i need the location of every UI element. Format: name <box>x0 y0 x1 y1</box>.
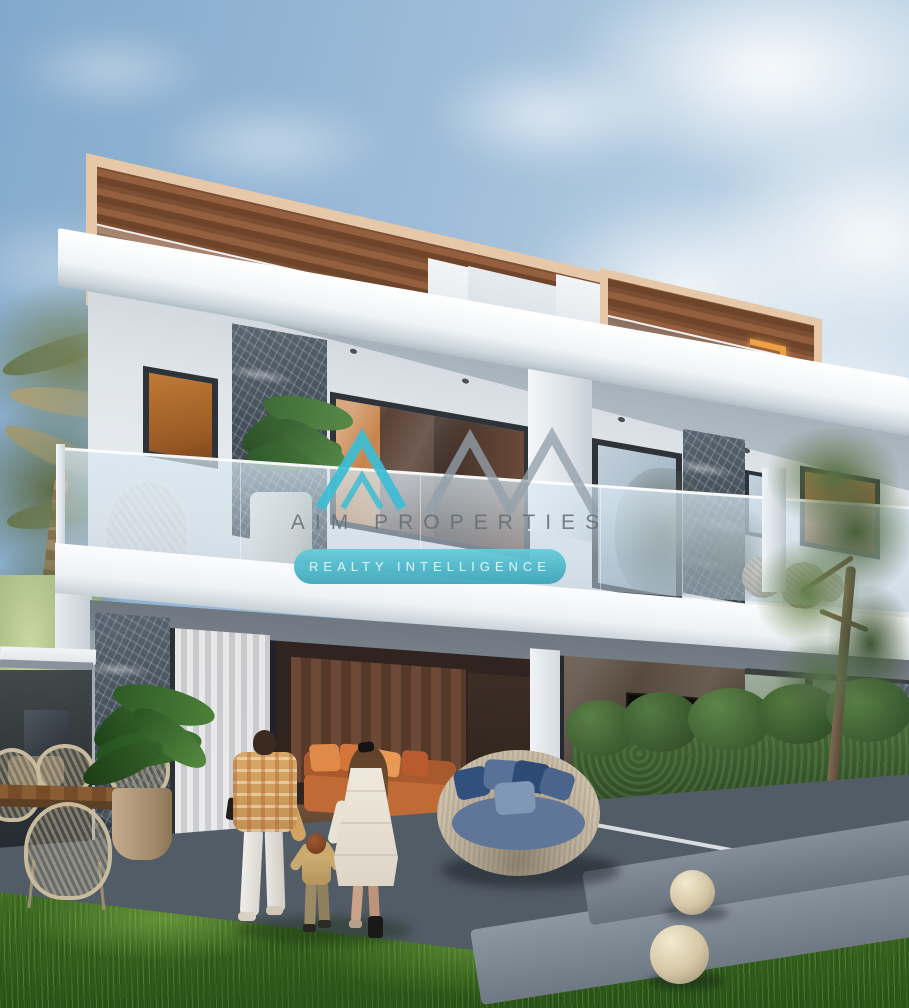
sofa-cushion <box>369 748 401 778</box>
sofa-cushion <box>309 744 342 772</box>
glass-seam <box>240 463 241 566</box>
downlight <box>350 348 357 354</box>
wicker-chair <box>24 802 112 900</box>
balustrade-end-post <box>56 444 65 552</box>
cloud <box>430 60 670 170</box>
sofa-cushion <box>340 743 368 772</box>
sofa-cushion <box>402 750 428 777</box>
downlight <box>462 378 469 384</box>
sphere-garden-lamp <box>670 870 715 915</box>
glass-seam <box>420 475 421 578</box>
sphere-garden-lamp <box>650 925 709 984</box>
downlight <box>618 416 625 422</box>
terracotta-planter <box>112 788 172 860</box>
glass-seam <box>600 488 601 591</box>
tree-foliage <box>776 636 870 720</box>
blue-pillow <box>494 781 536 816</box>
architectural-rendering: AIM PROPERTIES REALTY INTELLIGENCE <box>0 0 909 1008</box>
